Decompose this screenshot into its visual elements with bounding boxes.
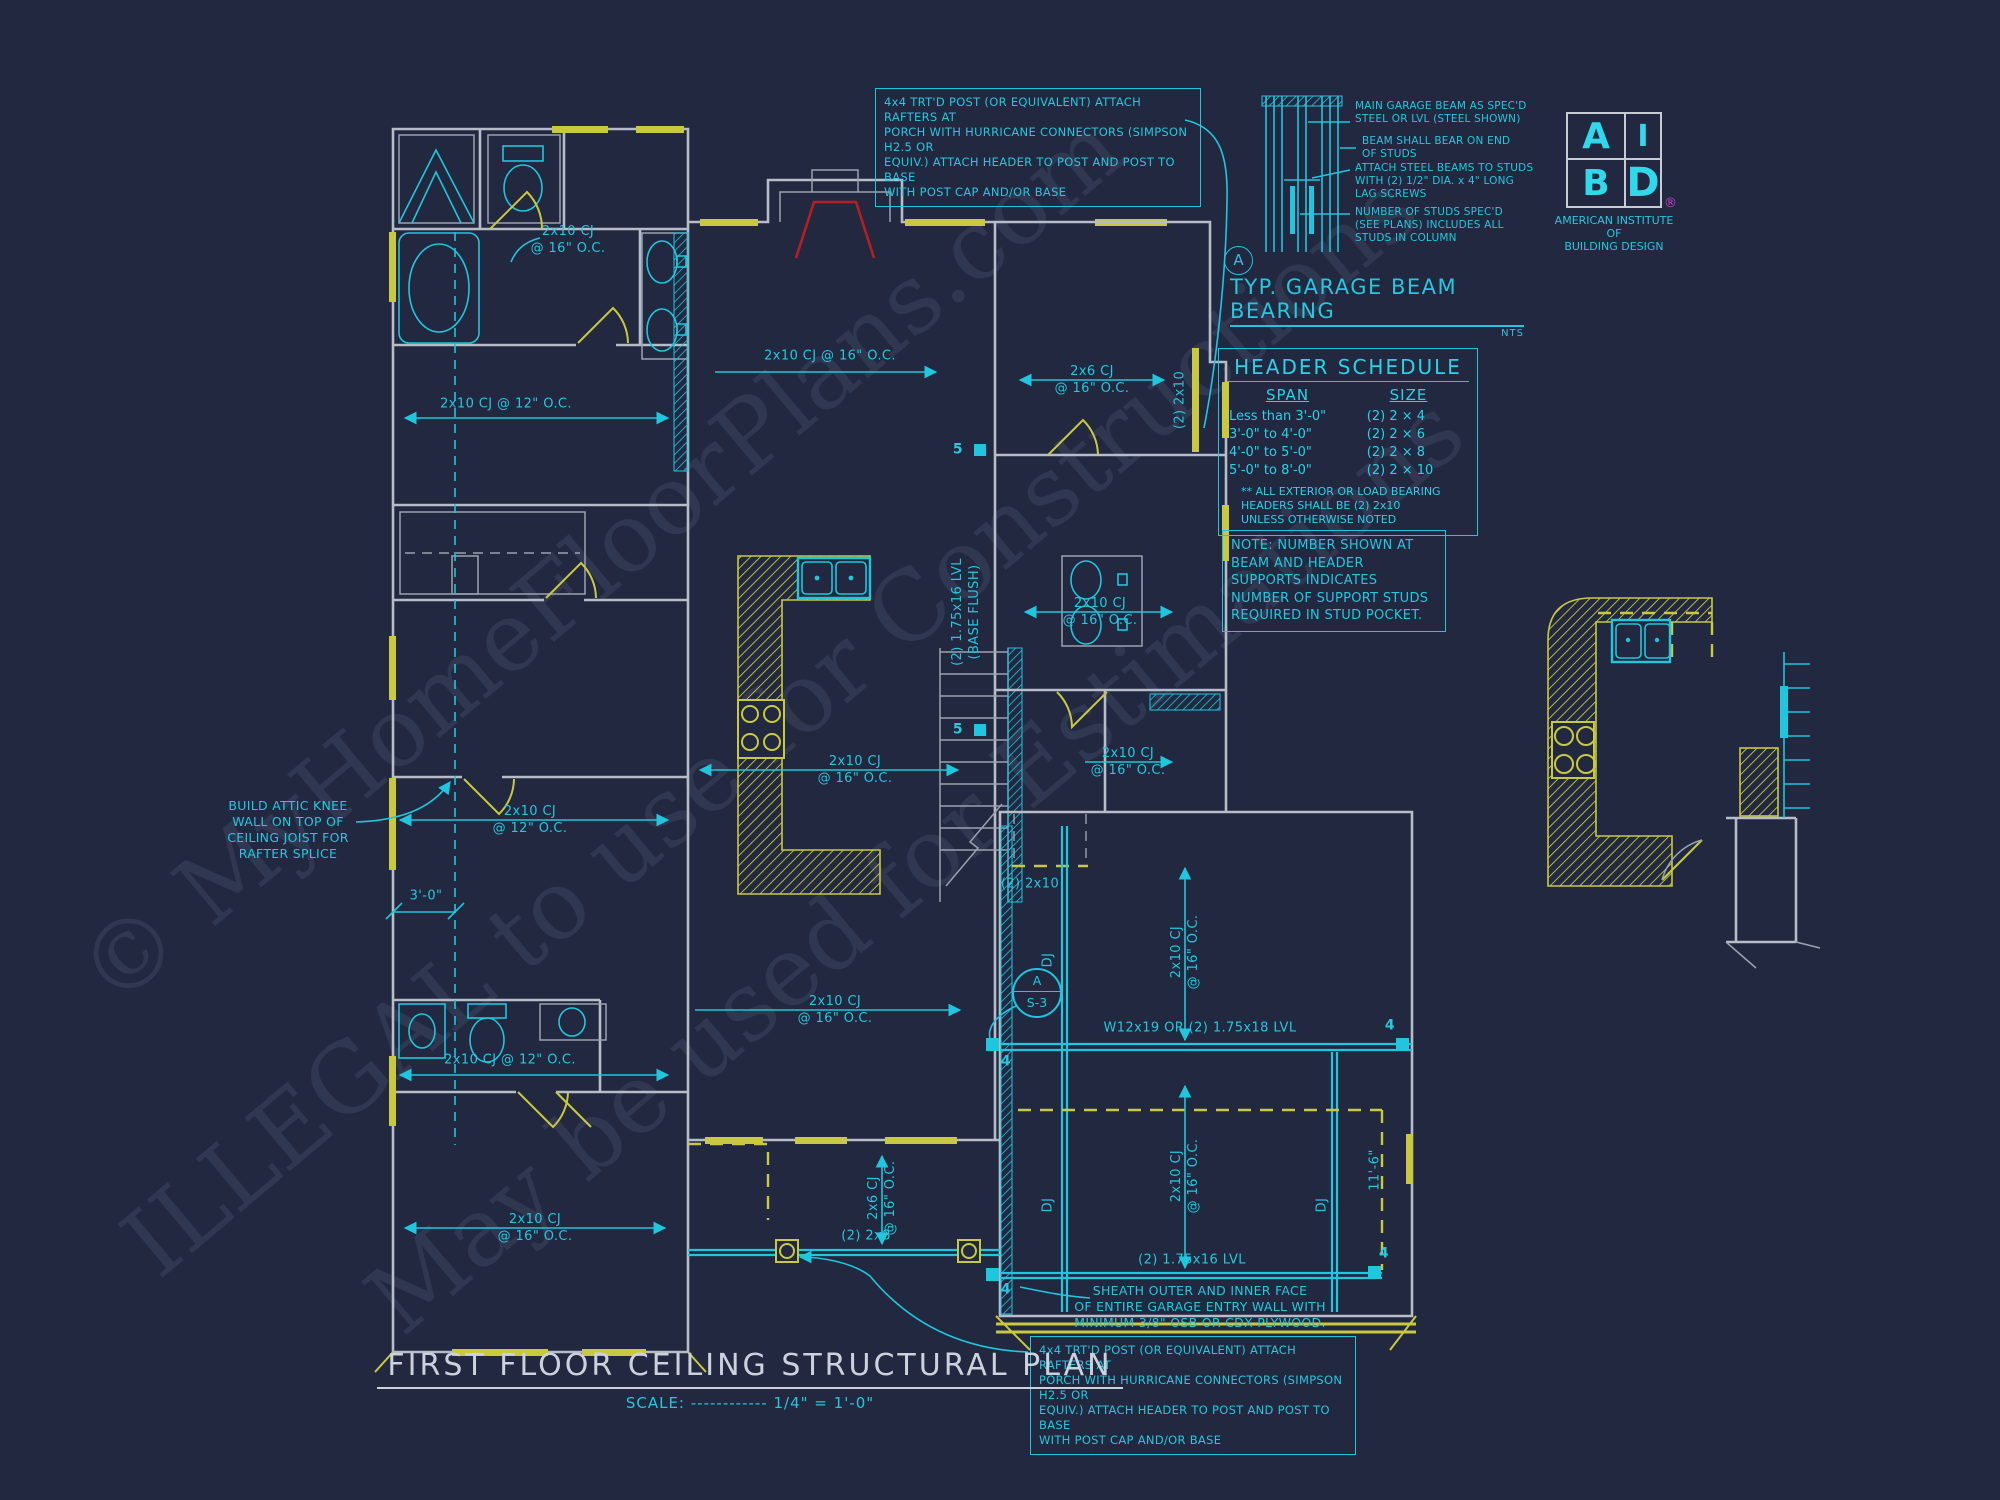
right-rooms [995, 222, 1229, 812]
joist-label: 2x10 CJ @ 16" O.C. [764, 348, 896, 365]
schedule-col-span: SPAN [1227, 386, 1348, 404]
joist-label: 2x10 CJ @ 16" O.C. [818, 753, 893, 787]
dimension-label: 11'-6" [1367, 1149, 1384, 1190]
dimension-label: 3'-0" [410, 888, 443, 905]
joist-label: 2x10 CJ @ 16" O.C. [1063, 595, 1138, 629]
sheet-title: FIRST FLOOR CEILING STRUCTURAL PLAN [377, 1348, 1122, 1389]
stud-count: 4 [1001, 1054, 1011, 1071]
logo-letter-b: B [1568, 160, 1626, 206]
logo-text-line: OF [1544, 227, 1684, 240]
schedule-cell: 5'-0" to 8'-0" [1227, 462, 1357, 480]
scale-dots: ------------ [691, 1394, 768, 1412]
scale-value: 1/4" = 1'-0" [774, 1394, 875, 1412]
logo-letter-a: A [1568, 114, 1626, 160]
schedule-cell: (2) 2 × 4 [1357, 408, 1469, 426]
schedule-cell: 4'-0" to 5'-0" [1227, 444, 1357, 462]
registered-mark: ® [1664, 196, 1677, 211]
reference-lines [386, 232, 464, 1145]
detail-marker-circle: A [1224, 246, 1253, 275]
logo-letter-d: D [1626, 160, 1660, 206]
joist-label: 2x10 CJ @ 16" O.C. [1168, 915, 1202, 990]
kitchen-detail [1548, 598, 1820, 968]
header-schedule: HEADER SCHEDULE SPAN SIZE Less than 3'-0… [1218, 348, 1478, 536]
garage-beam-bearing-detail [1262, 96, 1356, 252]
detail-callout: ATTACH STEEL BEAMS TO STUDS WITH (2) 1/2… [1355, 162, 1565, 201]
beam-label: (2) 2x8 [841, 1228, 891, 1245]
beam-label: (2) 1.75x16 LVL [1138, 1252, 1246, 1269]
porch-post-note-top: 4x4 TRT'D POST (OR EQUIVALENT) ATTACH RA… [875, 88, 1201, 207]
schedule-row: 5'-0" to 8'-0" (2) 2 × 10 [1227, 462, 1469, 480]
closet-and-bath2-fixtures [399, 512, 606, 1062]
stud-count: 4 [1385, 1018, 1395, 1035]
schedule-row: 4'-0" to 5'-0" (2) 2 × 8 [1227, 444, 1469, 462]
joist-label: 2x10 CJ @ 16" O.C. [1168, 1139, 1202, 1214]
aibd-logo-grid: A I B D [1566, 112, 1662, 208]
schedule-cell: (2) 2 × 8 [1357, 444, 1469, 462]
knee-wall-note: BUILD ATTIC KNEE WALL ON TOP OF CEILING … [218, 798, 358, 862]
bathroom-fixtures [399, 135, 688, 471]
stud-count: 4 [1001, 1282, 1011, 1299]
detail-scale: NTS [1224, 328, 1524, 339]
schedule-row: 3'-0" to 4'-0" (2) 2 × 6 [1227, 426, 1469, 444]
schedule-title: HEADER SCHEDULE [1227, 355, 1469, 382]
door-swings [464, 192, 628, 1127]
sheathing-note: SHEATH OUTER AND INNER FACE OF ENTIRE GA… [1055, 1283, 1345, 1331]
aibd-logo: A I B D ® AMERICAN INSTITUTE OF BUILDING… [1566, 112, 1716, 253]
aibd-logo-text: AMERICAN INSTITUTE OF BUILDING DESIGN [1544, 214, 1684, 253]
detail-title: ATYP. GARAGE BEAM BEARING NTS [1224, 246, 1524, 339]
beam-label: (2) 1.75x16 LVL (BASE FLUSH) [949, 558, 983, 666]
joist-label: 2x10 CJ @ 16" O.C. [798, 993, 873, 1027]
joist-label: 2x10 CJ @ 12" O.C. [440, 396, 572, 413]
bubble-sheet-number: S-3 [1014, 992, 1060, 1013]
logo-text-line: AMERICAN INSTITUTE [1544, 214, 1684, 227]
title-block: FIRST FLOOR CEILING STRUCTURAL PLAN SCAL… [365, 1348, 1135, 1412]
kitchen [738, 556, 880, 894]
joist-label: 2x10 CJ @ 16" O.C. [531, 223, 606, 257]
schedule-cell: (2) 2 × 10 [1357, 462, 1469, 480]
bubble-detail-letter: A [1014, 970, 1060, 992]
detail-title-text: TYP. GARAGE BEAM BEARING [1230, 275, 1524, 327]
schedule-row: Less than 3'-0" (2) 2 × 4 [1227, 408, 1469, 426]
stud-count: 5 [953, 442, 963, 459]
beam-label: DJ [1040, 1198, 1057, 1213]
beam-label: (2) 2x10 [1001, 876, 1059, 893]
joist-label: 2x10 CJ @ 12" O.C. [444, 1052, 576, 1069]
schedule-cell: 3'-0" to 4'-0" [1227, 426, 1357, 444]
detail-callout: NUMBER OF STUDS SPEC'D (SEE PLANS) INCLU… [1355, 206, 1555, 245]
joist-label: 2x10 CJ @ 12" O.C. [493, 803, 568, 837]
beam-label: W12x19 OR (2) 1.75x18 LVL [1104, 1020, 1297, 1037]
joist-label: 2x6 CJ @ 16" O.C. [1055, 363, 1130, 397]
schedule-cell: Less than 3'-0" [1227, 408, 1357, 426]
scale-prefix: SCALE: [626, 1394, 685, 1412]
detail-callout: MAIN GARAGE BEAM AS SPEC'D STEEL OR LVL … [1355, 100, 1555, 126]
beam-label: (2) 2x10 [1172, 371, 1189, 429]
detail-reference-bubble: A S-3 [1012, 968, 1062, 1018]
schedule-footnote: ** ALL EXTERIOR OR LOAD BEARING HEADERS … [1227, 485, 1469, 527]
detail-callout: BEAM SHALL BEAR ON END OF STUDS [1362, 135, 1562, 161]
note-leaders [356, 120, 1227, 1352]
logo-text-line: BUILDING DESIGN [1544, 240, 1684, 253]
beam-label: DJ [1314, 1198, 1331, 1213]
left-wing-windows [375, 126, 706, 1372]
schedule-col-size: SIZE [1348, 386, 1469, 404]
joist-label: 2x6 CJ @ 16" O.C. [865, 1161, 899, 1236]
stud-pocket-note: NOTE: NUMBER SHOWN AT BEAM AND HEADER SU… [1222, 530, 1446, 632]
joist-label: 2x10 CJ @ 16" O.C. [498, 1211, 573, 1245]
schedule-cell: (2) 2 × 6 [1357, 426, 1469, 444]
left-wing-walls [393, 129, 688, 1352]
logo-letter-i: I [1626, 114, 1660, 160]
blueprint-canvas: © MyHomeFloorPlans.com ILLEGAL to use fo… [0, 0, 2000, 1500]
stud-count: 4 [1379, 1246, 1389, 1263]
beam-label: DJ [1040, 953, 1057, 968]
stud-count: 5 [953, 722, 963, 739]
sheet-scale: SCALE: ------------ 1/4" = 1'-0" [365, 1394, 1135, 1412]
joist-label: 2x10 CJ @ 16" O.C. [1091, 745, 1166, 779]
